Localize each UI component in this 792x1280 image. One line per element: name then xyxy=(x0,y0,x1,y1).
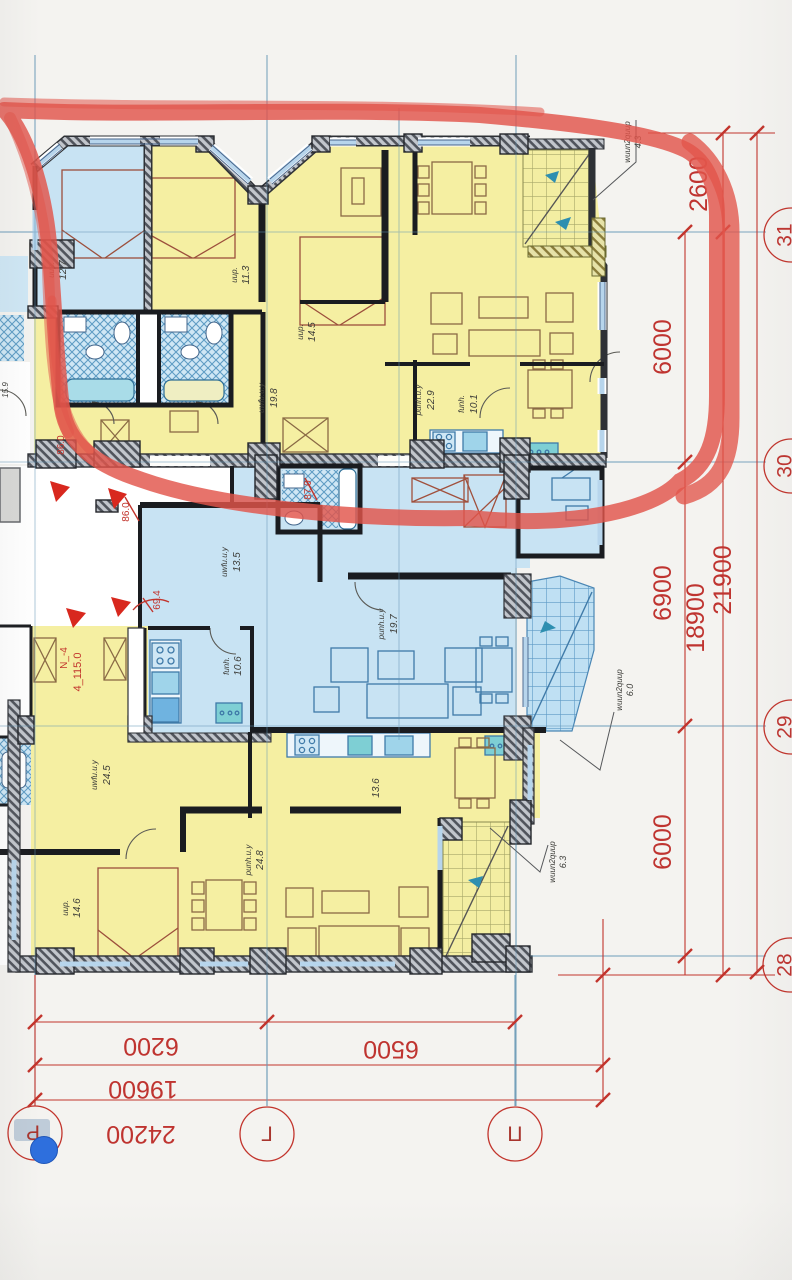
svg-text:funh.: funh. xyxy=(222,657,231,675)
svg-text:14.6: 14.6 xyxy=(72,898,83,918)
svg-text:87.0: 87.0 xyxy=(303,480,314,500)
svg-text:13.5: 13.5 xyxy=(232,552,243,572)
svg-text:uup.: uup. xyxy=(296,324,305,340)
svg-text:18900: 18900 xyxy=(682,583,710,653)
svg-text:4_115.0: 4_115.0 xyxy=(72,653,84,692)
svg-text:10.6: 10.6 xyxy=(233,656,244,676)
svg-text:10.1: 10.1 xyxy=(469,394,480,413)
svg-text:6000: 6000 xyxy=(649,319,677,375)
svg-text:24200: 24200 xyxy=(106,1120,176,1148)
svg-text:wuun2quup: wuun2quup xyxy=(548,841,557,883)
svg-text:uwfu.u.y: uwfu.u.y xyxy=(90,759,99,790)
svg-text:П: П xyxy=(507,1121,522,1144)
svg-text:6.3: 6.3 xyxy=(558,856,568,869)
svg-text:uwfu.u.y: uwfu.u.y xyxy=(257,382,266,413)
svg-text:N_-4: N_-4 xyxy=(59,647,70,669)
svg-text:uup.: uup. xyxy=(61,900,70,916)
svg-text:19600: 19600 xyxy=(108,1075,178,1103)
svg-text:punh.u.y: punh.u.y xyxy=(377,608,386,641)
svg-text:30: 30 xyxy=(774,454,792,477)
svg-text:Г: Г xyxy=(261,1121,272,1144)
svg-text:15.9: 15.9 xyxy=(1,382,10,398)
svg-text:21900: 21900 xyxy=(709,545,737,615)
svg-text:24.5: 24.5 xyxy=(102,765,113,786)
svg-text:funh.: funh. xyxy=(457,395,466,413)
svg-text:punh.u.y: punh.u.y xyxy=(414,384,423,417)
svg-text:24.8: 24.8 xyxy=(255,850,266,871)
svg-text:29: 29 xyxy=(774,715,792,738)
svg-text:uup.: uup. xyxy=(230,267,239,283)
svg-text:6.0: 6.0 xyxy=(625,684,635,697)
svg-text:22.9: 22.9 xyxy=(426,390,437,411)
svg-text:11.3: 11.3 xyxy=(241,265,252,284)
svg-text:punh.u.y: punh.u.y xyxy=(244,844,253,877)
svg-text:6500: 6500 xyxy=(363,1035,419,1063)
svg-text:6900: 6900 xyxy=(649,565,677,621)
svg-text:19.7: 19.7 xyxy=(389,614,400,634)
svg-text:31: 31 xyxy=(774,223,792,246)
svg-text:14.5: 14.5 xyxy=(307,322,318,342)
svg-text:6200: 6200 xyxy=(123,1032,179,1060)
svg-text:13.6: 13.6 xyxy=(371,778,382,798)
svg-text:19.8: 19.8 xyxy=(269,388,280,408)
svg-text:uwfu.u.y: uwfu.u.y xyxy=(220,546,229,577)
svg-text:6000: 6000 xyxy=(649,814,677,870)
svg-text:28: 28 xyxy=(774,953,792,976)
svg-text:wuun2quup: wuun2quup xyxy=(615,669,624,711)
